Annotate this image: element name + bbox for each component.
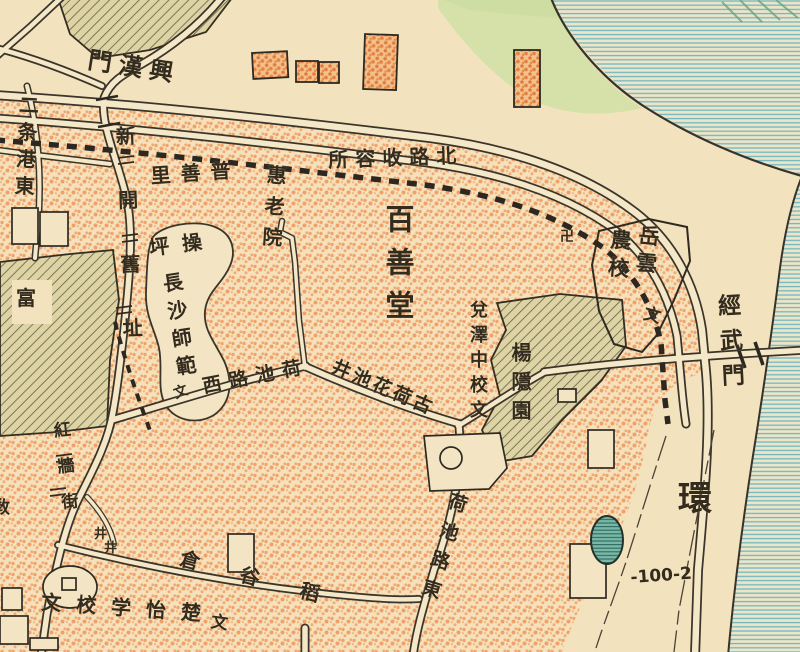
pond bbox=[591, 516, 623, 564]
hatched-block-west bbox=[0, 250, 119, 436]
map-canvas bbox=[0, 0, 800, 652]
fu-label-clearing bbox=[12, 280, 52, 324]
historical-changsha-map: 門漢興所容收路北二条港東新開舊址里善普惠老院坪操長沙師範文百善堂西路池荷井池花荷… bbox=[0, 0, 800, 652]
